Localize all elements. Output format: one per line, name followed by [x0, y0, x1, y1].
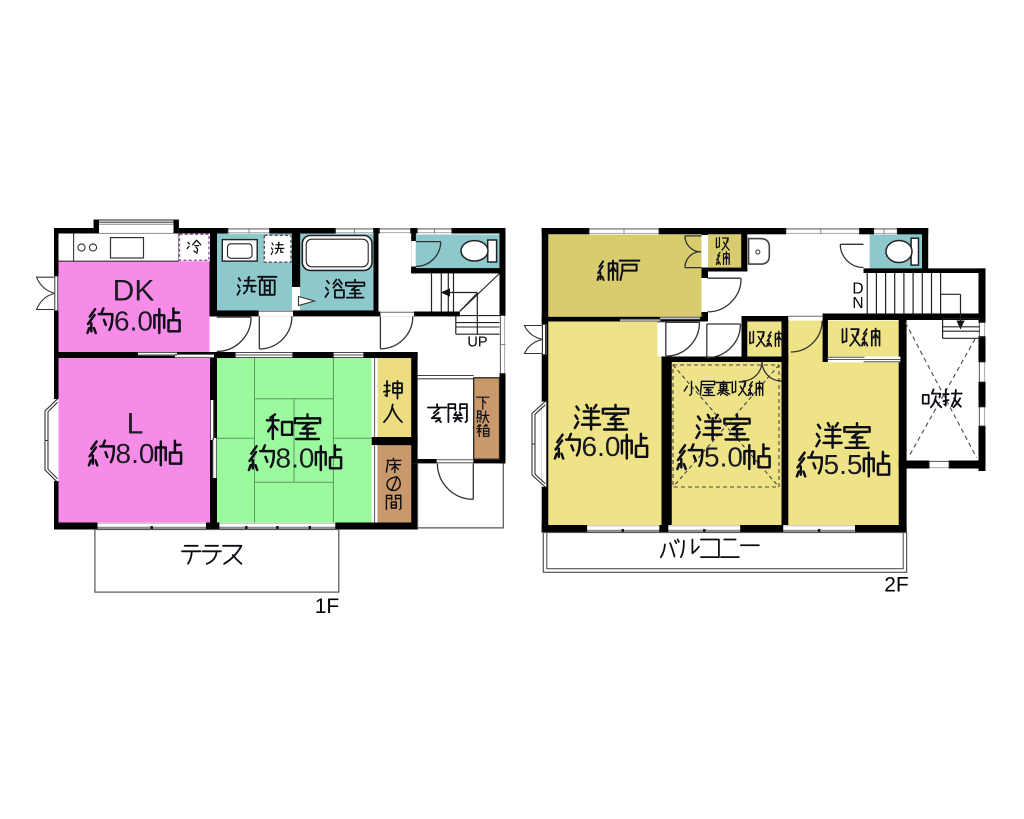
- svg-text:UP: UP: [467, 335, 487, 351]
- svg-text:N: N: [852, 295, 863, 312]
- svg-text:8.0: 8.0: [276, 443, 315, 474]
- svg-text:1F: 1F: [315, 595, 340, 618]
- svg-text:5.0: 5.0: [704, 442, 743, 473]
- svg-text:L: L: [127, 408, 144, 441]
- svg-text:5.5: 5.5: [824, 449, 863, 480]
- svg-text:2F: 2F: [884, 574, 909, 597]
- svg-text:6.0: 6.0: [582, 431, 621, 462]
- svg-text:6.0: 6.0: [114, 306, 153, 337]
- svg-text:8.0: 8.0: [116, 438, 155, 469]
- svg-text:DK: DK: [113, 275, 155, 308]
